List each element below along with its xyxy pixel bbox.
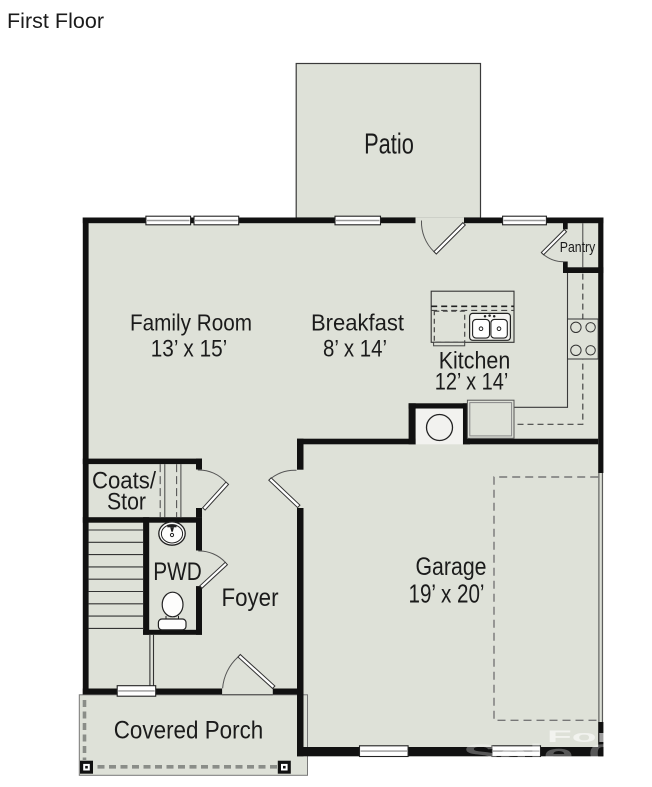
svg-text:Garage: Garage (416, 553, 487, 581)
svg-text:Pantry: Pantry (560, 240, 596, 256)
svg-text:12’ x 14’: 12’ x 14’ (435, 369, 509, 396)
svg-text:Sale 09: Sale 09 (463, 739, 648, 769)
svg-text:Foyer: Foyer (222, 584, 279, 612)
svg-text:Stor: Stor (107, 489, 146, 516)
svg-text:Family Room: Family Room (130, 310, 252, 336)
svg-text:19’ x 20’: 19’ x 20’ (409, 579, 485, 609)
svg-text:8’ x 14’: 8’ x 14’ (323, 336, 387, 363)
svg-text:PWD: PWD (153, 558, 202, 586)
svg-text:Breakfast: Breakfast (311, 310, 405, 336)
svg-text:First Floor: First Floor (7, 9, 104, 33)
svg-text:Covered Porch: Covered Porch (114, 717, 264, 745)
svg-text:13’ x 15’: 13’ x 15’ (151, 336, 228, 363)
svg-text:Patio: Patio (364, 129, 414, 161)
